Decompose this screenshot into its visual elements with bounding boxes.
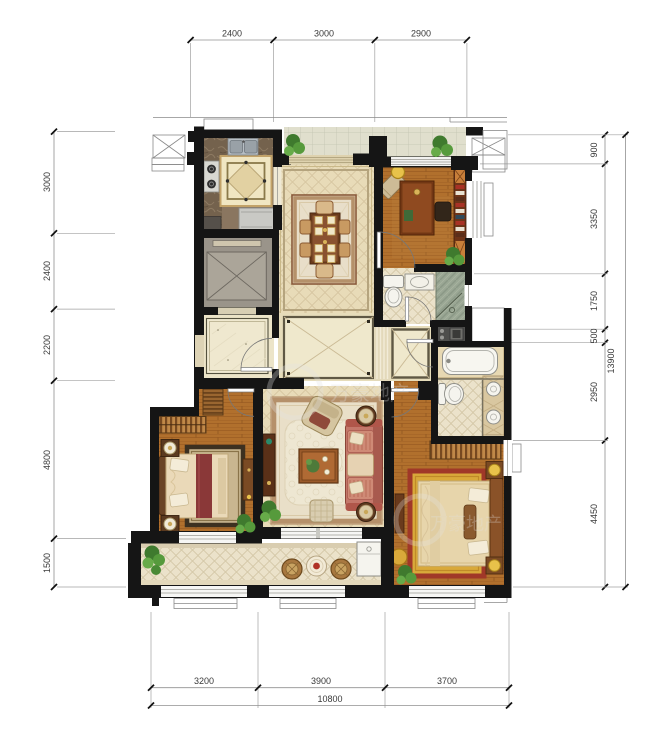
svg-text:1500: 1500 — [42, 553, 52, 573]
svg-text:500: 500 — [589, 328, 599, 343]
svg-text:万豪地产: 万豪地产 — [330, 382, 410, 405]
svg-text:万豪地产: 万豪地产 — [430, 514, 502, 534]
svg-text:1750: 1750 — [589, 291, 599, 311]
svg-text:3900: 3900 — [311, 676, 331, 686]
svg-text:2400: 2400 — [222, 29, 242, 39]
svg-text:900: 900 — [589, 142, 599, 157]
svg-text:13900: 13900 — [606, 348, 616, 373]
svg-text:10800: 10800 — [317, 694, 342, 704]
svg-text:2400: 2400 — [42, 261, 52, 281]
svg-text:2950: 2950 — [589, 382, 599, 402]
svg-text:4800: 4800 — [42, 450, 52, 470]
svg-text:2900: 2900 — [411, 29, 431, 39]
svg-text:4450: 4450 — [589, 504, 599, 524]
svg-text:3000: 3000 — [314, 29, 334, 39]
svg-text:3000: 3000 — [42, 172, 52, 192]
svg-text:3700: 3700 — [437, 676, 457, 686]
svg-text:3350: 3350 — [589, 209, 599, 229]
svg-text:2200: 2200 — [42, 335, 52, 355]
svg-text:3200: 3200 — [194, 676, 214, 686]
